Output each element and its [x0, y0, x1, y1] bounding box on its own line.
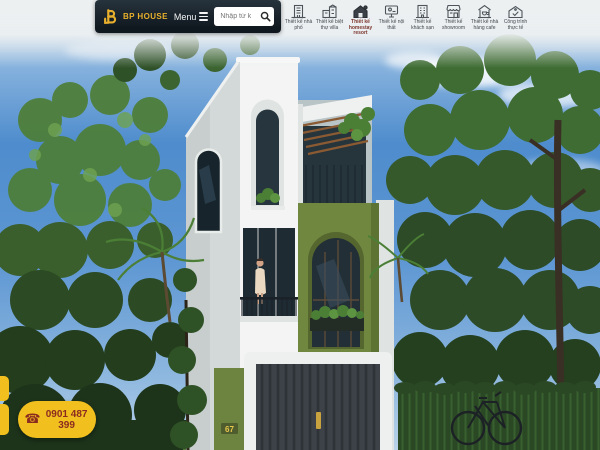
phone-number: 0901 487 399 — [44, 409, 90, 431]
header-bar: BP HOUSE Menu — [95, 0, 281, 33]
nav-item-interior[interactable]: Thiết kế nội thất — [376, 2, 407, 37]
search-button[interactable] — [257, 7, 274, 26]
search-box — [214, 7, 274, 26]
nav-item-label: Thiết kế nội thất — [376, 20, 407, 31]
menu-button[interactable]: Menu — [174, 12, 209, 22]
restaurant-cafe-icon — [476, 4, 493, 19]
brand-logo[interactable]: BP HOUSE — [102, 7, 168, 26]
services-nav: Thiết kế nhà phố Thiết kế biệt thự villa… — [283, 2, 531, 37]
green-wall — [293, 203, 379, 373]
nav-item-label: Thiết kế nhà hàng cafe — [469, 20, 500, 31]
page: 67 — [0, 0, 600, 450]
rooftop-pergola — [296, 95, 375, 206]
nav-item-label: Thiết kế nhà phố — [283, 20, 314, 31]
phone-button[interactable]: ☎ 0901 487 399 — [18, 401, 96, 438]
townhouse-icon — [290, 4, 307, 19]
completed-project-icon — [507, 4, 524, 19]
nav-item-label: Thiết kế biệt thự villa — [314, 20, 345, 31]
nav-item-label: Thiết kế homestay resort — [345, 20, 376, 37]
nav-item-townhouse[interactable]: Thiết kế nhà phố — [283, 2, 314, 37]
house-number: 67 — [225, 425, 234, 434]
nav-item-homestay[interactable]: Thiết kế homestay resort — [345, 2, 376, 37]
search-icon — [260, 11, 271, 22]
nav-item-label: Thiết kế showroom — [438, 20, 469, 31]
hamburger-icon — [199, 12, 208, 21]
nav-item-hotel[interactable]: Thiết kế khách sạn — [407, 2, 438, 37]
brand-name: BP HOUSE — [123, 12, 168, 21]
nav-item-label: Công trình thực tế — [500, 20, 531, 31]
nav-item-villa[interactable]: Thiết kế biệt thự villa — [314, 2, 345, 37]
nav-item-showroom[interactable]: Thiết kế showroom — [438, 2, 469, 37]
contact-side-tab-2[interactable] — [0, 404, 9, 435]
hero-image: 67 — [0, 0, 600, 450]
villa-icon — [321, 4, 338, 19]
hotel-icon — [414, 4, 431, 19]
gate-handle — [316, 412, 321, 429]
interior-design-icon — [383, 4, 400, 19]
showroom-icon — [445, 4, 462, 19]
nav-item-label: Thiết kế khách sạn — [407, 20, 438, 31]
contact-side-tab[interactable] — [0, 376, 9, 401]
menu-label: Menu — [174, 12, 197, 22]
nav-item-completed-projects[interactable]: Công trình thực tế — [500, 2, 531, 37]
nav-item-restaurant-cafe[interactable]: Thiết kế nhà hàng cafe — [469, 2, 500, 37]
homestay-icon — [352, 4, 369, 19]
planter-box — [310, 318, 364, 331]
bp-house-logo-icon — [102, 7, 120, 26]
phone-icon: ☎ — [24, 413, 40, 426]
search-input[interactable] — [214, 13, 257, 20]
